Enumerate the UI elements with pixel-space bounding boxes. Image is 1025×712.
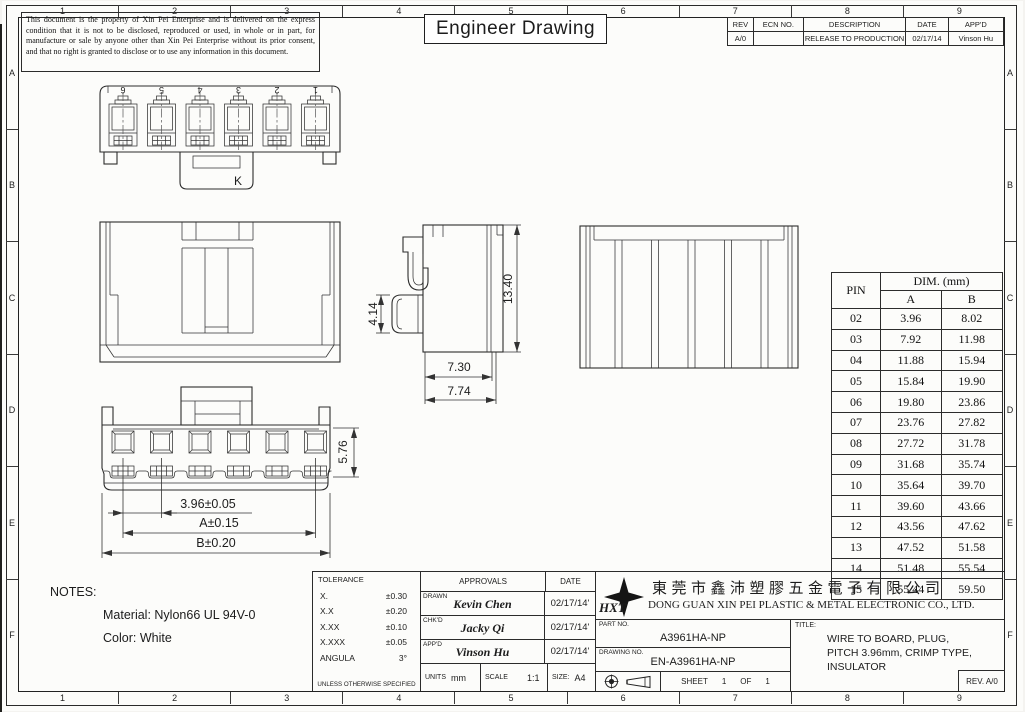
approval-role-label: CHK'D: [423, 617, 443, 624]
pin-table-row: 0619.8023.86: [832, 392, 1003, 413]
tolerance-type: X.: [320, 591, 328, 601]
company-logo-text: HXT: [599, 600, 626, 616]
approvals-date-heading: DATE: [546, 572, 595, 591]
pin-number-label: 1: [313, 85, 318, 95]
company-name-chinese: 東莞市鑫沛塑膠五金電子有限公司: [652, 577, 945, 598]
approval-signature-cell: APP'DVinson Hu: [421, 640, 545, 663]
pin-table-cell: 43.56: [880, 516, 941, 537]
approval-role-label: APP'D: [423, 641, 442, 648]
pin-table-cell: 23.76: [880, 412, 941, 433]
dim-a: A±0.15: [199, 516, 239, 530]
pin-table-cell: 02: [832, 309, 881, 330]
approval-signature-cell: CHK'DJacky Qi: [421, 616, 545, 639]
approval-signature-cell: DRAWNKevin Chen: [421, 592, 545, 615]
tolerance-footer: UNLESS OTHERWISE SPECIFIED: [313, 681, 420, 688]
pin-table-body: 023.968.02037.9211.980411.8815.940515.84…: [832, 309, 1003, 600]
drawing-no-row: DRAWING NO. EN-A3961HA-NP: [596, 648, 790, 672]
pin-dimension-table: PIN DIM. (mm) A B 023.968.02037.9211.980…: [831, 272, 1003, 600]
tolerance-row: X.XXX±0.05: [313, 635, 420, 651]
approval-date: 02/17/14': [545, 616, 595, 639]
pin-table-cell: 11.98: [941, 329, 1002, 350]
pin-table-cell: 35.64: [880, 475, 941, 496]
pin-table-row: 037.9211.98: [832, 329, 1003, 350]
pin-table-cell: 39.60: [880, 496, 941, 517]
title-label: TITLE:: [795, 622, 816, 629]
size-value: A4: [575, 673, 586, 683]
units-cell: UNITS mm: [421, 664, 481, 691]
pin-table-cell: 27.72: [880, 433, 941, 454]
pin-table-cell: 19.90: [941, 371, 1002, 392]
dim-7-30: 7.30: [447, 360, 471, 374]
pin-table-cell: 3.96: [880, 309, 941, 330]
scale-cell: SCALE 1:1: [481, 664, 548, 691]
pin-table-cell: 39.70: [941, 475, 1002, 496]
top-view-cavities: 6 5: [109, 85, 330, 150]
projection-circle-icon: [604, 674, 619, 689]
pin-table-cell: 10: [832, 475, 881, 496]
dim-b-col-header: B: [941, 291, 1002, 309]
approval-row: DRAWNKevin Chen02/17/14': [421, 592, 595, 616]
pin-table-cell: 15.84: [880, 371, 941, 392]
approvals-header-row: APPROVALS DATE: [421, 572, 595, 592]
bottom-view-cavities: [112, 431, 327, 476]
company-name-english: DONG GUAN XIN PEI PLASTIC & METAL ELECTR…: [648, 599, 974, 611]
tolerance-value: 3°: [399, 653, 407, 663]
top-view: K 6: [100, 85, 340, 189]
projection-sheet-row: SHEET 1 OF 1: [596, 672, 790, 691]
sheet-label: SHEET: [681, 677, 708, 686]
pin-table-cell: 12: [832, 516, 881, 537]
pin-table-cell: 07: [832, 412, 881, 433]
pin-table-cell: 04: [832, 350, 881, 371]
dim-pitch: 3.96±0.05: [180, 497, 236, 511]
title-line: WIRE TO BOARD, PLUG,: [827, 632, 972, 646]
pin-table-cell: 09: [832, 454, 881, 475]
title-text: WIRE TO BOARD, PLUG,PITCH 3.96mm, CRIMP …: [827, 632, 972, 674]
pin-table-cell: 13: [832, 537, 881, 558]
pin-table-cell: 11.88: [880, 350, 941, 371]
drawing-no-value: EN-A3961HA-NP: [596, 656, 790, 668]
pin-table-cell: 35.74: [941, 454, 1002, 475]
approvals-block: APPROVALS DATE DRAWNKevin Chen02/17/14'C…: [420, 571, 595, 691]
pin-table-cell: 27.82: [941, 412, 1002, 433]
tolerance-row: ANGULA3°: [313, 650, 420, 666]
tolerance-value: ±0.30: [386, 591, 407, 601]
approvals-heading: APPROVALS: [421, 572, 546, 591]
rear-view-ribs: [615, 240, 768, 368]
pin-table-cell: 15.94: [941, 350, 1002, 371]
side-view: 4.14 13.40 7.30 7.74: [366, 225, 521, 404]
company-block: HXT 東莞市鑫沛塑膠五金電子有限公司 DONG GUAN XIN PEI PL…: [595, 571, 1004, 620]
part-no-row: PART NO. A3961HA-NP: [596, 620, 790, 648]
approval-role-label: DRAWN: [423, 593, 447, 600]
front-view: [100, 222, 340, 362]
approval-date: 02/17/14': [545, 592, 595, 615]
sheet-of-label: OF: [740, 677, 751, 686]
tolerance-value: ±0.05: [386, 637, 407, 647]
dim-5-76: 5.76: [336, 440, 350, 464]
dim-13-40: 13.40: [501, 274, 515, 304]
tolerance-rows: X.±0.30X.X±0.20X.XX±0.10X.XXX±0.05ANGULA…: [313, 588, 420, 666]
title-line: INSULATOR: [827, 660, 972, 674]
scale-value: 1:1: [527, 673, 540, 683]
pin-number-label: 2: [274, 85, 279, 95]
dim-b: B±0.20: [196, 536, 236, 550]
pin-table-cell: 7.92: [880, 329, 941, 350]
pin-table-cell: 11: [832, 496, 881, 517]
units-value: mm: [451, 673, 466, 683]
size-cell: SIZE: A4: [548, 664, 595, 691]
pin-table-row: 0931.6835.74: [832, 454, 1003, 475]
tolerance-type: X.X: [320, 606, 334, 616]
pin-table-cell: 8.02: [941, 309, 1002, 330]
drawing-title-block: TITLE: WIRE TO BOARD, PLUG,PITCH 3.96mm,…: [790, 620, 1004, 691]
pin-table-row: 0827.7231.78: [832, 433, 1003, 454]
sheet-number: 1: [722, 677, 726, 686]
pin-table-row: 023.968.02: [832, 309, 1003, 330]
pin-table-cell: 51.58: [941, 537, 1002, 558]
pin-table-row: 1243.5647.62: [832, 516, 1003, 537]
pin-table-cell: 03: [832, 329, 881, 350]
tolerance-row: X.±0.30: [313, 588, 420, 604]
projection-symbols-cell: [596, 672, 661, 691]
approval-date: 02/17/14': [545, 640, 595, 663]
sheet-cell: SHEET 1 OF 1: [661, 672, 790, 691]
tolerance-row: X.X±0.20: [313, 604, 420, 620]
tolerance-type: ANGULA: [320, 653, 355, 663]
pin-table-cell: 05: [832, 371, 881, 392]
tolerance-row: X.XX±0.10: [313, 619, 420, 635]
pin-table-cell: 19.80: [880, 392, 941, 413]
dim-a-col-header: A: [880, 291, 941, 309]
pin-table-header-row: PIN DIM. (mm): [832, 273, 1003, 291]
tolerance-value: ±0.20: [386, 606, 407, 616]
pin-table-row: 1139.6043.66: [832, 496, 1003, 517]
part-no-label: PART NO.: [599, 621, 629, 628]
tolerance-value: ±0.10: [386, 622, 407, 632]
tolerance-heading: TOLERANCE: [318, 575, 420, 584]
approvals-rows: DRAWNKevin Chen02/17/14'CHK'DJacky Qi02/…: [421, 592, 595, 664]
title-line: PITCH 3.96mm, CRIMP TYPE,: [827, 646, 972, 660]
pin-number-label: 5: [159, 85, 164, 95]
approval-signature: Vinson Hu: [456, 645, 510, 660]
projection-cone-icon: [625, 675, 653, 689]
tolerance-block: TOLERANCE X.±0.30X.X±0.20X.XX±0.10X.XXX±…: [312, 571, 420, 691]
bottom-view: 5.76 3.96±0.05 A±0.15 B±0.20: [102, 387, 359, 558]
rear-view: [580, 226, 798, 368]
pin-number-label: 6: [120, 85, 125, 95]
pin-table-cell: 31.78: [941, 433, 1002, 454]
units-label: UNITS: [425, 674, 446, 681]
pin-table-cell: 47.52: [880, 537, 941, 558]
pin-table-row: 1347.5251.58: [832, 537, 1003, 558]
note-material: Material: Nylon66 UL 94V-0: [103, 608, 255, 622]
drawing-no-label: DRAWING NO.: [599, 649, 644, 656]
pin-table-cell: 31.68: [880, 454, 941, 475]
pin-table-row: 1035.6439.70: [832, 475, 1003, 496]
tolerance-type: X.XXX: [320, 637, 345, 647]
part-number-block: PART NO. A3961HA-NP DRAWING NO. EN-A3961…: [595, 620, 790, 691]
engineering-drawing-sheet: 123456789 123456789 ABCDEF ABCDEF This d…: [0, 0, 1025, 712]
tolerance-type: X.XX: [320, 622, 339, 632]
size-label: SIZE:: [552, 674, 570, 681]
scale-label: SCALE: [485, 674, 508, 681]
part-no-value: A3961HA-NP: [596, 632, 790, 644]
pin-table-cell: 43.66: [941, 496, 1002, 517]
pin-table-row: 0411.8815.94: [832, 350, 1003, 371]
approvals-footer-row: UNITS mm SCALE 1:1 SIZE: A4: [421, 664, 595, 691]
pin-number-label: 4: [197, 85, 202, 95]
pin-col-header: PIN: [832, 273, 881, 309]
notes-heading: NOTES:: [50, 585, 97, 599]
note-color: Color: White: [103, 631, 172, 645]
pin-table-cell: 23.86: [941, 392, 1002, 413]
pin-table-row: 0515.8419.90: [832, 371, 1003, 392]
pin-number-label: 3: [236, 85, 241, 95]
pin-table-cell: 47.62: [941, 516, 1002, 537]
sheet-total: 1: [765, 677, 769, 686]
pin-table-cell: 08: [832, 433, 881, 454]
approval-signature: Jacky Qi: [461, 621, 505, 636]
pin-table-cell: 06: [832, 392, 881, 413]
dim-7-74: 7.74: [447, 384, 471, 398]
approval-signature: Kevin Chen: [453, 597, 511, 612]
pin-table-row: 0723.7627.82: [832, 412, 1003, 433]
approval-row: APP'DVinson Hu02/17/14': [421, 640, 595, 664]
dim-col-header: DIM. (mm): [880, 273, 1002, 291]
rev-badge: REV. A/0: [958, 670, 1005, 691]
key-slot-label: K: [234, 174, 242, 188]
dim-4-14: 4.14: [366, 302, 380, 326]
approval-row: CHK'DJacky Qi02/17/14': [421, 616, 595, 640]
